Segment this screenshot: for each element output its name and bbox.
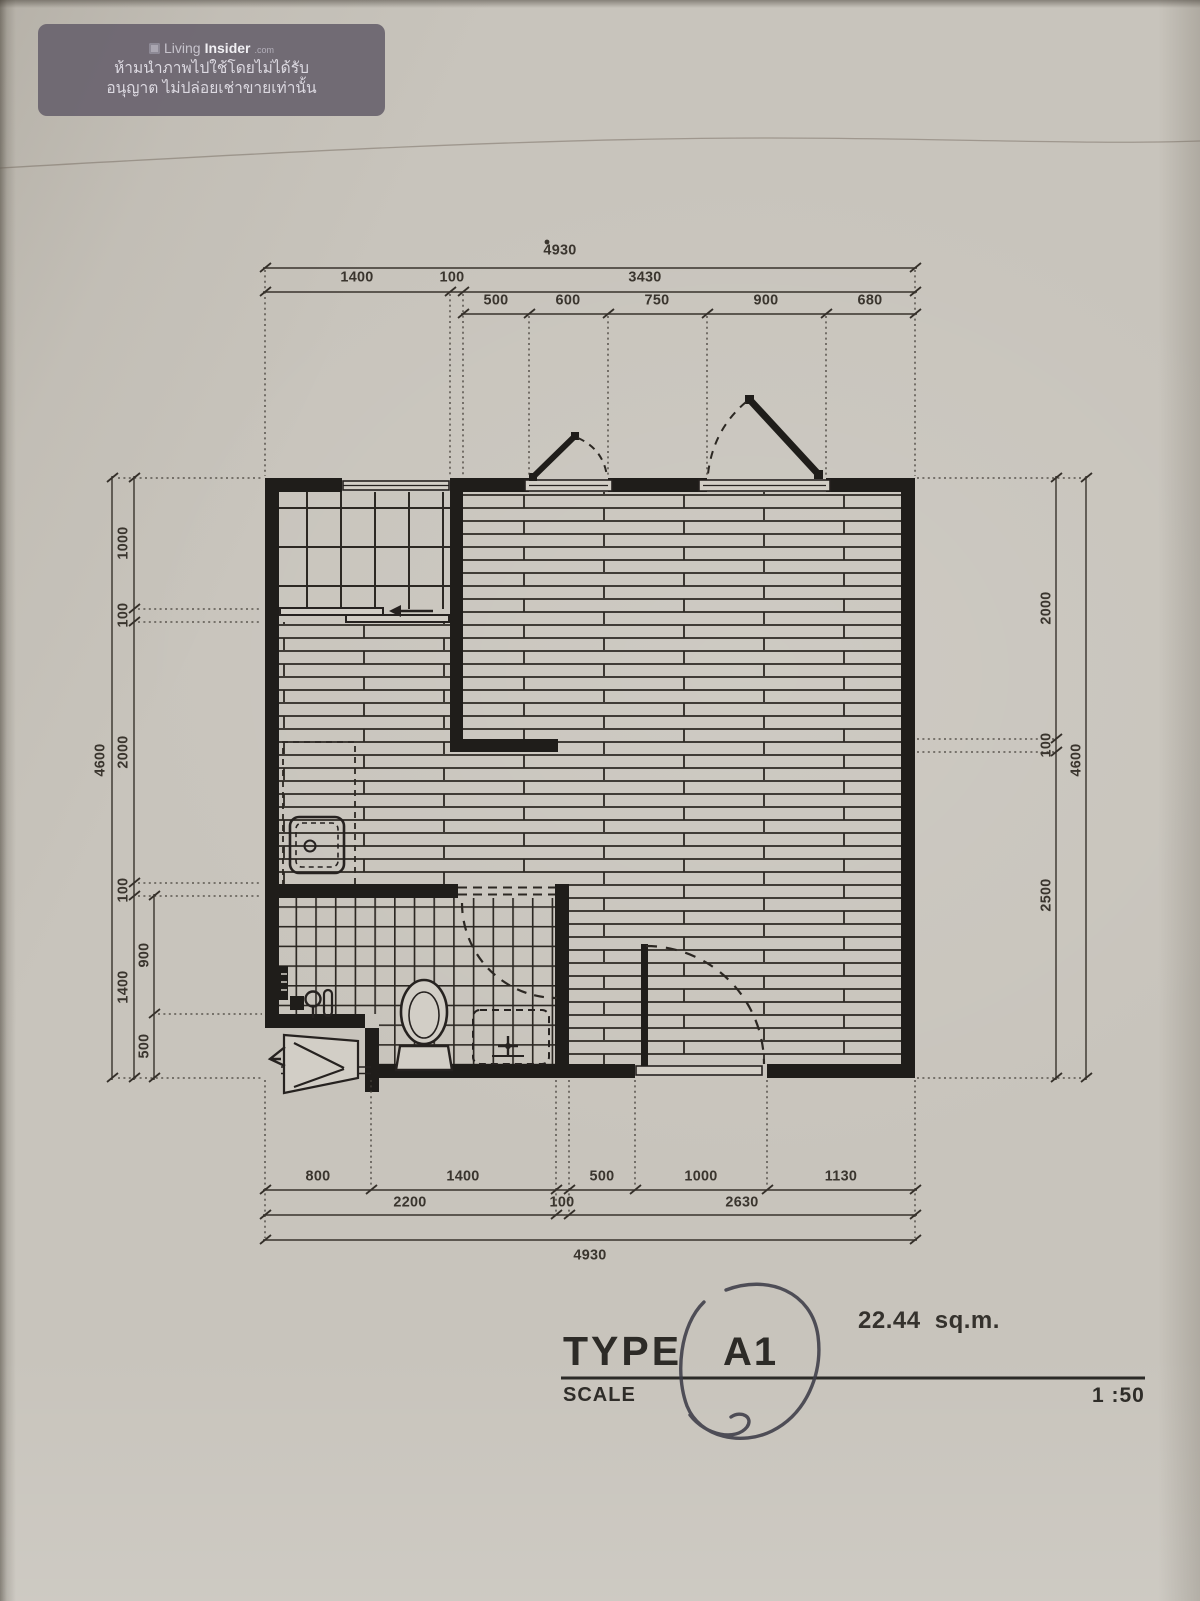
entry-nook-wall	[265, 1014, 365, 1028]
bathroom-side-wall	[555, 884, 569, 1064]
bottom-wall-right	[767, 1064, 915, 1078]
dim-top-100: 100	[440, 269, 465, 286]
left-wall	[265, 492, 279, 1014]
unit-entrance-door	[270, 1035, 371, 1093]
entry-direction-arrow	[270, 1047, 285, 1066]
dim-bottom-2630: 2630	[725, 1194, 758, 1211]
dim-left-2000: 2000	[115, 735, 132, 768]
dim-top-900: 900	[754, 292, 779, 309]
balcony-floor	[279, 492, 450, 609]
casement-window-right	[699, 395, 830, 491]
dim-bottom-800: 800	[306, 1168, 331, 1185]
living-room-floor-south	[569, 884, 901, 1064]
dim-bottom-1130: 1130	[825, 1168, 857, 1185]
dim-top-1400: 1400	[340, 269, 373, 286]
interior-wall	[450, 492, 463, 739]
watermark-notice-line2: อนุญาต ไม่ปล่อยเช่าขายเท่านั้น	[106, 79, 316, 99]
dim-left-1400: 1400	[115, 970, 132, 1003]
scale-value: 1 :50	[1092, 1384, 1145, 1408]
scanned-paper-background: 4930 1400 100 3430 500 600 750 900 680 8…	[0, 0, 1200, 1601]
area-value: 22.44 sq.m.	[858, 1307, 1000, 1335]
dim-top-500: 500	[484, 292, 509, 309]
brand-living: Living	[164, 41, 201, 56]
dim-top-3430: 3430	[628, 269, 661, 286]
dim-top-600: 600	[556, 292, 581, 309]
dim-left-100a: 100	[115, 603, 132, 628]
casement-window-left	[525, 432, 612, 491]
dim-right-2500: 2500	[1038, 878, 1055, 911]
floor-finishes	[279, 492, 901, 1064]
dim-right-100: 100	[1038, 733, 1055, 758]
interior-wall-stub	[450, 739, 558, 752]
dim-top-680: 680	[858, 292, 883, 309]
entry-nook-side-wall	[365, 1028, 379, 1092]
dim-right-2000: 2000	[1038, 591, 1055, 624]
type-label: TYPE	[563, 1328, 682, 1375]
dim-bottom-500: 500	[590, 1168, 615, 1185]
dim-right-total: 4600	[1068, 743, 1085, 776]
dim-bottom-2200: 2200	[393, 1194, 426, 1211]
dim-top-total: 4930	[543, 242, 576, 259]
scale-label: SCALE	[563, 1384, 636, 1407]
floor-strip	[450, 752, 463, 884]
watermark-notice-line1: ห้ามนำภาพไปใช้โดยไม่ได้รับ	[114, 59, 309, 79]
type-value: A1	[723, 1330, 778, 1375]
dim-left-100b: 100	[115, 878, 132, 903]
watermark-overlay: LivingInsider.com ห้ามนำภาพไปใช้โดยไม่ได…	[38, 24, 385, 116]
dim-bottom-100: 100	[550, 1194, 575, 1211]
brand-insider: Insider	[205, 41, 251, 56]
dim-left-1000: 1000	[115, 526, 132, 559]
bathroom-wall	[265, 884, 458, 898]
dim-bottom-1400: 1400	[446, 1168, 479, 1185]
dim-left-500: 500	[136, 1034, 153, 1059]
balcony-window	[343, 481, 449, 490]
dim-left-total: 4600	[92, 743, 109, 776]
toilet	[396, 980, 452, 1070]
dim-bottom-1000: 1000	[684, 1168, 717, 1185]
paper-crease-line	[0, 138, 1200, 168]
dim-bottom-total: 4930	[573, 1247, 606, 1264]
brand-tld: .com	[254, 43, 274, 58]
watermark-brand: LivingInsider.com	[149, 41, 274, 58]
living-room-floor	[463, 492, 901, 884]
living-insider-logo-icon	[149, 43, 160, 54]
right-wall	[901, 492, 915, 1064]
dim-top-750: 750	[645, 292, 670, 309]
dim-left-900: 900	[136, 943, 153, 968]
